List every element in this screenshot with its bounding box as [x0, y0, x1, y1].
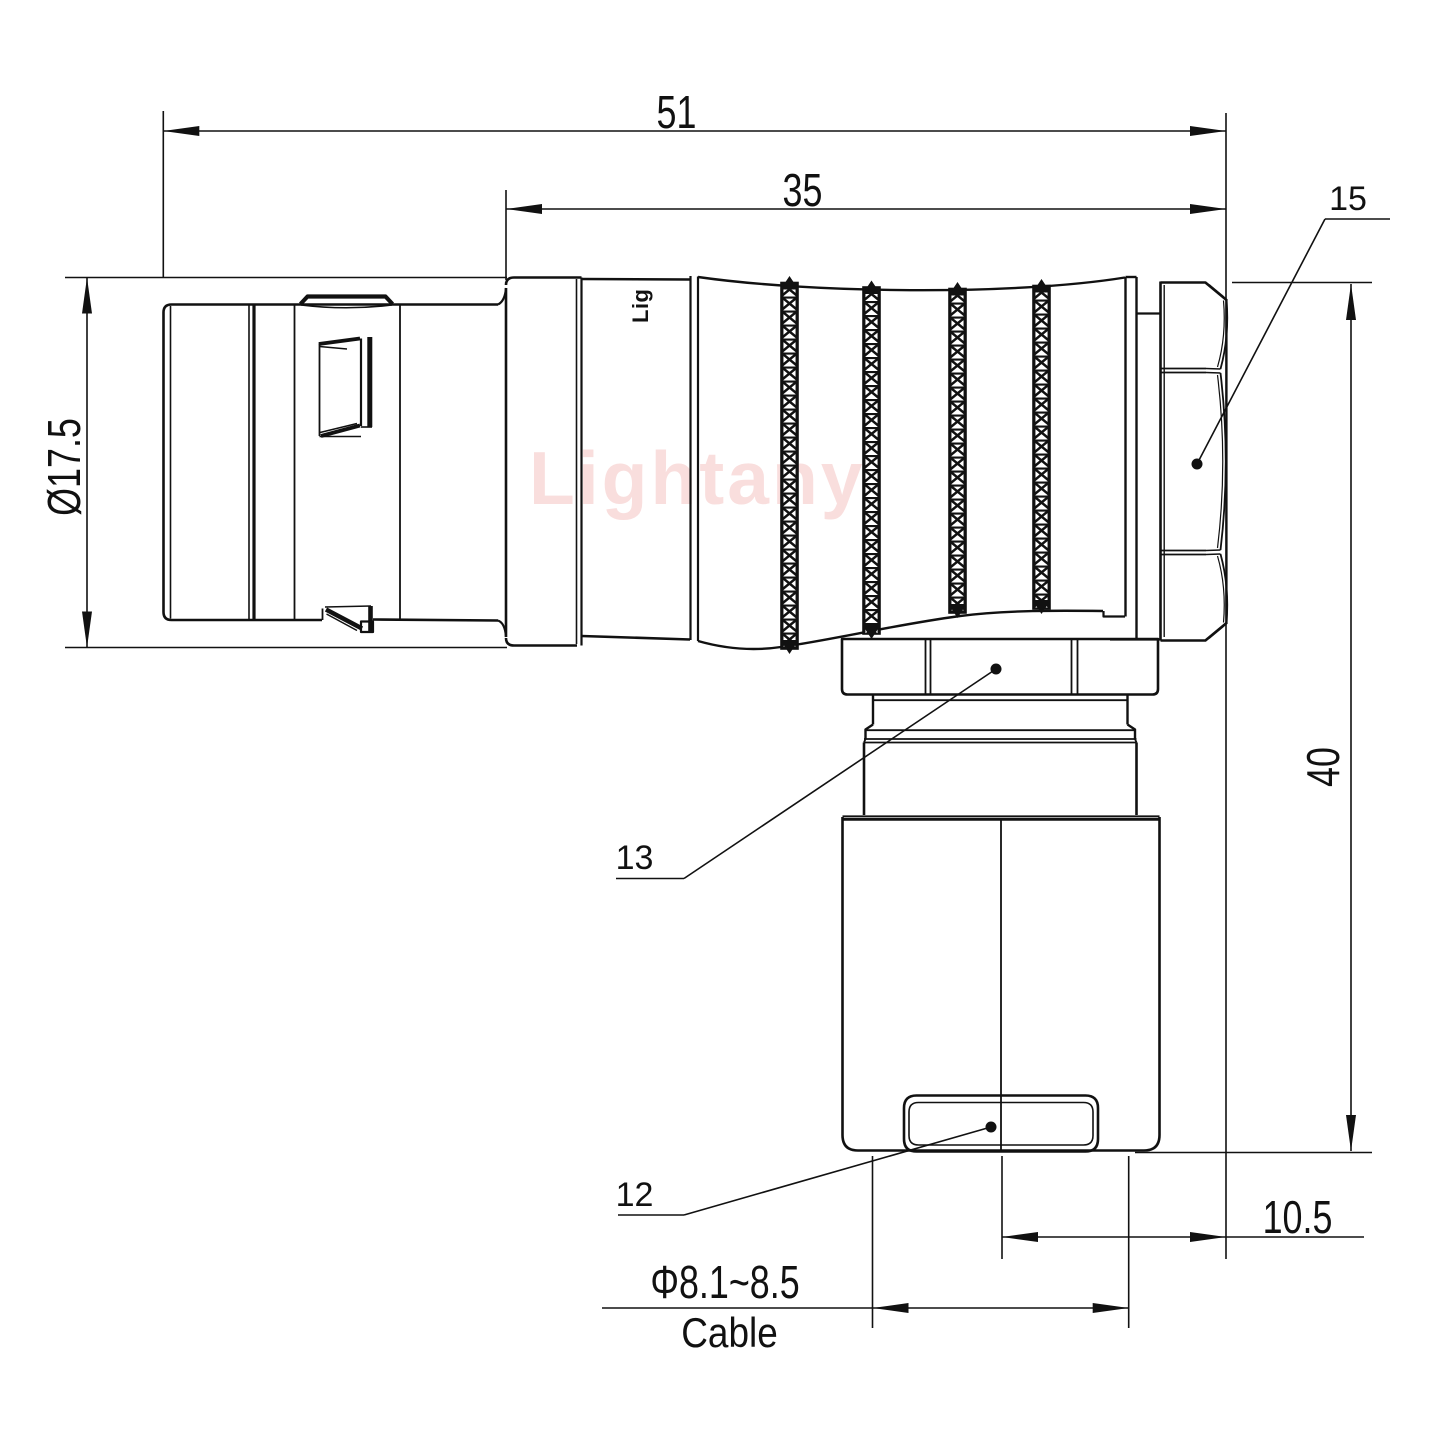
svg-text:15: 15: [1329, 180, 1367, 218]
svg-text:Ø17.5: Ø17.5: [39, 418, 90, 516]
svg-text:Φ8.1~8.5: Φ8.1~8.5: [650, 1257, 799, 1308]
svg-text:10.5: 10.5: [1263, 1192, 1333, 1243]
svg-text:Cable: Cable: [681, 1310, 778, 1357]
svg-text:51: 51: [657, 87, 697, 138]
svg-text:Lig: Lig: [628, 289, 653, 324]
svg-text:40: 40: [1298, 747, 1349, 787]
svg-text:12: 12: [616, 1176, 654, 1214]
svg-text:13: 13: [616, 839, 654, 877]
svg-text:35: 35: [783, 165, 823, 216]
